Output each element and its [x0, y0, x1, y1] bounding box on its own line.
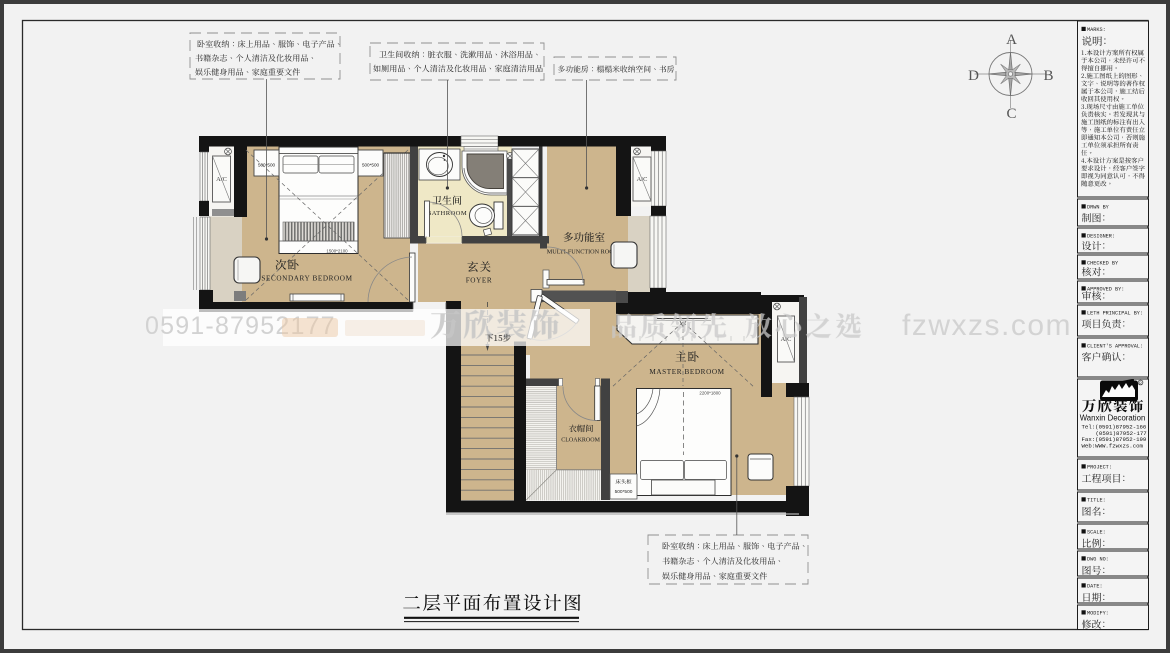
- svg-text:TITLE:: TITLE:: [1087, 498, 1106, 504]
- svg-text:SECONDARY BEDROOM: SECONDARY BEDROOM: [261, 275, 352, 283]
- svg-text:DESIGNER:: DESIGNER:: [1087, 234, 1115, 240]
- svg-text:A/C: A/C: [637, 176, 648, 183]
- svg-text:BATHROOM: BATHROOM: [427, 210, 467, 217]
- svg-text:A: A: [1006, 32, 1017, 48]
- svg-text:PROJECT:: PROJECT:: [1087, 465, 1112, 471]
- svg-text:CLIENT'S APPROVAL:: CLIENT'S APPROVAL:: [1087, 344, 1143, 350]
- svg-text:Wanxin Decoration: Wanxin Decoration: [1080, 414, 1146, 423]
- svg-text:LETH PRINCIPAL BY:: LETH PRINCIPAL BY:: [1087, 311, 1143, 317]
- svg-text:MULTI-FUNCTION ROOM: MULTI-FUNCTION ROOM: [547, 249, 620, 256]
- svg-text:500*500: 500*500: [615, 489, 633, 495]
- svg-text:B: B: [1043, 68, 1053, 84]
- svg-text:CHECKED BY: CHECKED BY: [1087, 261, 1119, 267]
- svg-text:DWG NO:: DWG NO:: [1087, 557, 1109, 563]
- svg-text:A/C: A/C: [216, 176, 227, 183]
- svg-text:MASTER BEDROOM: MASTER BEDROOM: [649, 368, 724, 376]
- svg-text:DRWN BY: DRWN BY: [1087, 205, 1110, 211]
- svg-text:MODIFY:: MODIFY:: [1087, 611, 1109, 617]
- svg-text:R: R: [1139, 381, 1142, 386]
- svg-text:D: D: [968, 68, 979, 84]
- svg-text:SCALE:: SCALE:: [1087, 530, 1106, 536]
- svg-text:fzwxzs.com: fzwxzs.com: [902, 309, 1072, 342]
- svg-text:500*500: 500*500: [362, 163, 380, 168]
- svg-text:C: C: [1006, 106, 1016, 122]
- svg-text:MARKS:: MARKS:: [1087, 27, 1106, 33]
- svg-text:DATE:: DATE:: [1087, 584, 1103, 590]
- svg-text:2200*1800: 2200*1800: [699, 391, 721, 396]
- svg-text:CLOAKROOM: CLOAKROOM: [561, 438, 600, 444]
- svg-text:FOYER: FOYER: [466, 277, 493, 285]
- svg-text:1500*2100: 1500*2100: [326, 249, 348, 254]
- svg-text:APPROVED BY:: APPROVED BY:: [1087, 287, 1124, 293]
- svg-text:Web:WWW.fzwxzs.com: Web:WWW.fzwxzs.com: [1082, 442, 1144, 449]
